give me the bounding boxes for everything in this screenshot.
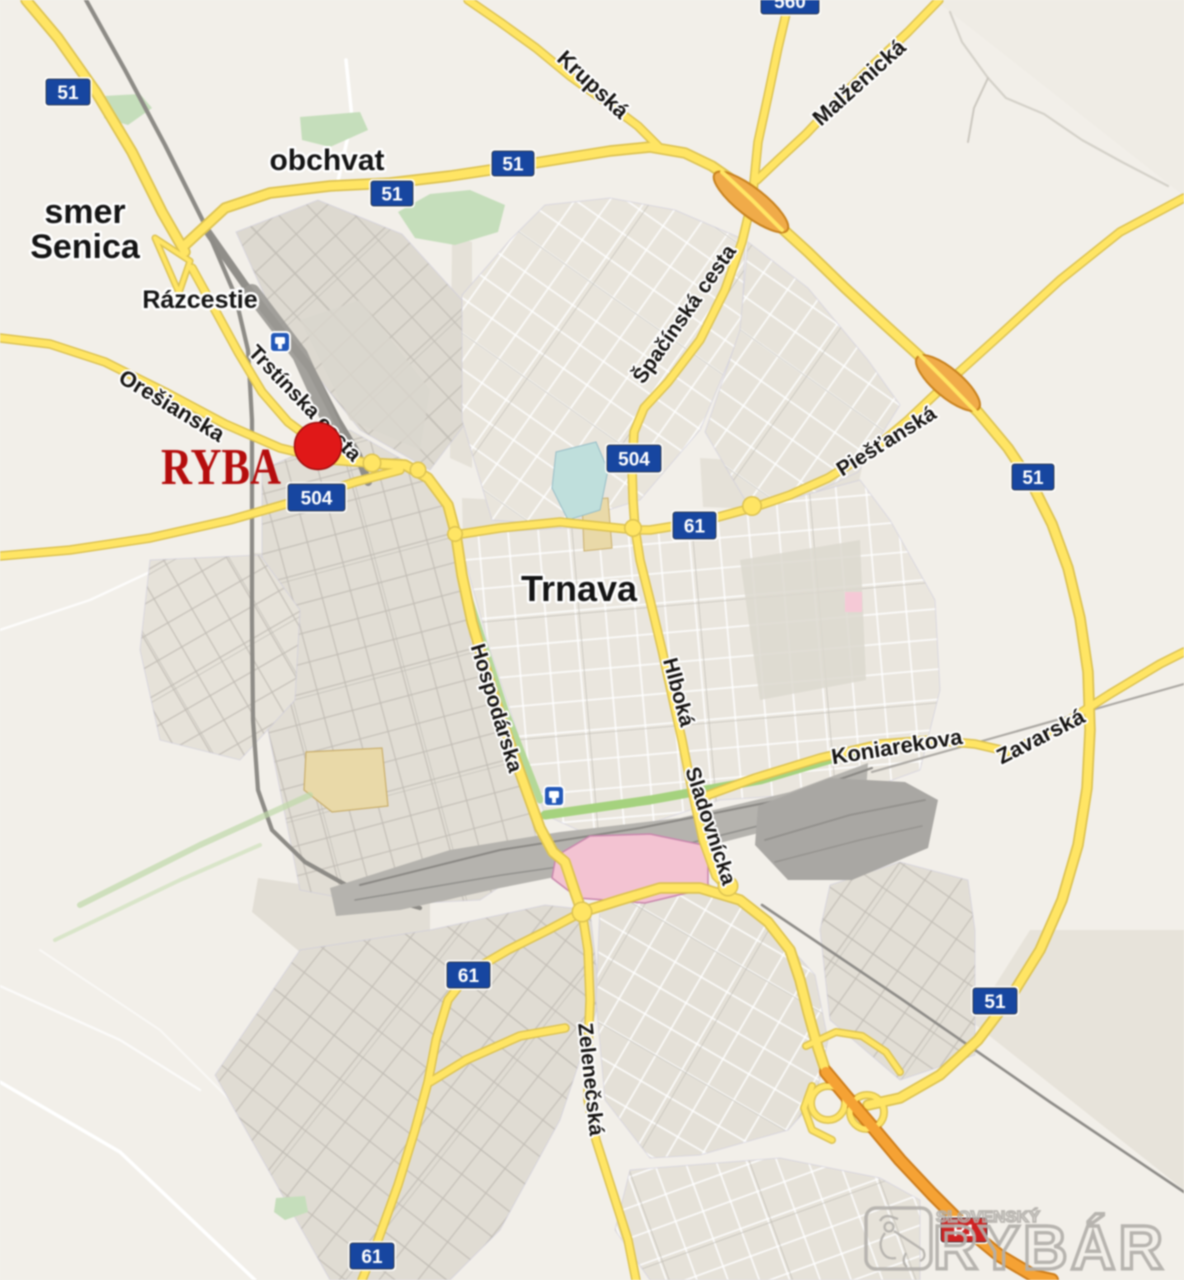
svg-text:51: 51 bbox=[57, 83, 79, 104]
svg-text:61: 61 bbox=[684, 516, 706, 537]
svg-text:61: 61 bbox=[458, 966, 480, 987]
svg-text:51: 51 bbox=[381, 184, 403, 205]
svg-text:61: 61 bbox=[361, 1247, 383, 1268]
svg-text:51: 51 bbox=[502, 154, 524, 175]
svg-text:Rázcestie: Rázcestie bbox=[142, 286, 257, 314]
svg-text:RYBÁR: RYBÁR bbox=[933, 1214, 1166, 1280]
svg-text:RYBA: RYBA bbox=[161, 439, 281, 496]
svg-text:Senica: Senica bbox=[30, 228, 141, 266]
svg-text:560: 560 bbox=[774, 0, 806, 13]
svg-text:Trnava: Trnava bbox=[521, 568, 638, 609]
svg-text:504: 504 bbox=[618, 449, 650, 470]
svg-text:504: 504 bbox=[301, 488, 333, 509]
svg-text:obchvat: obchvat bbox=[269, 144, 384, 177]
svg-text:51: 51 bbox=[1022, 468, 1044, 489]
svg-text:smer: smer bbox=[44, 193, 125, 231]
svg-text:51: 51 bbox=[984, 992, 1006, 1013]
